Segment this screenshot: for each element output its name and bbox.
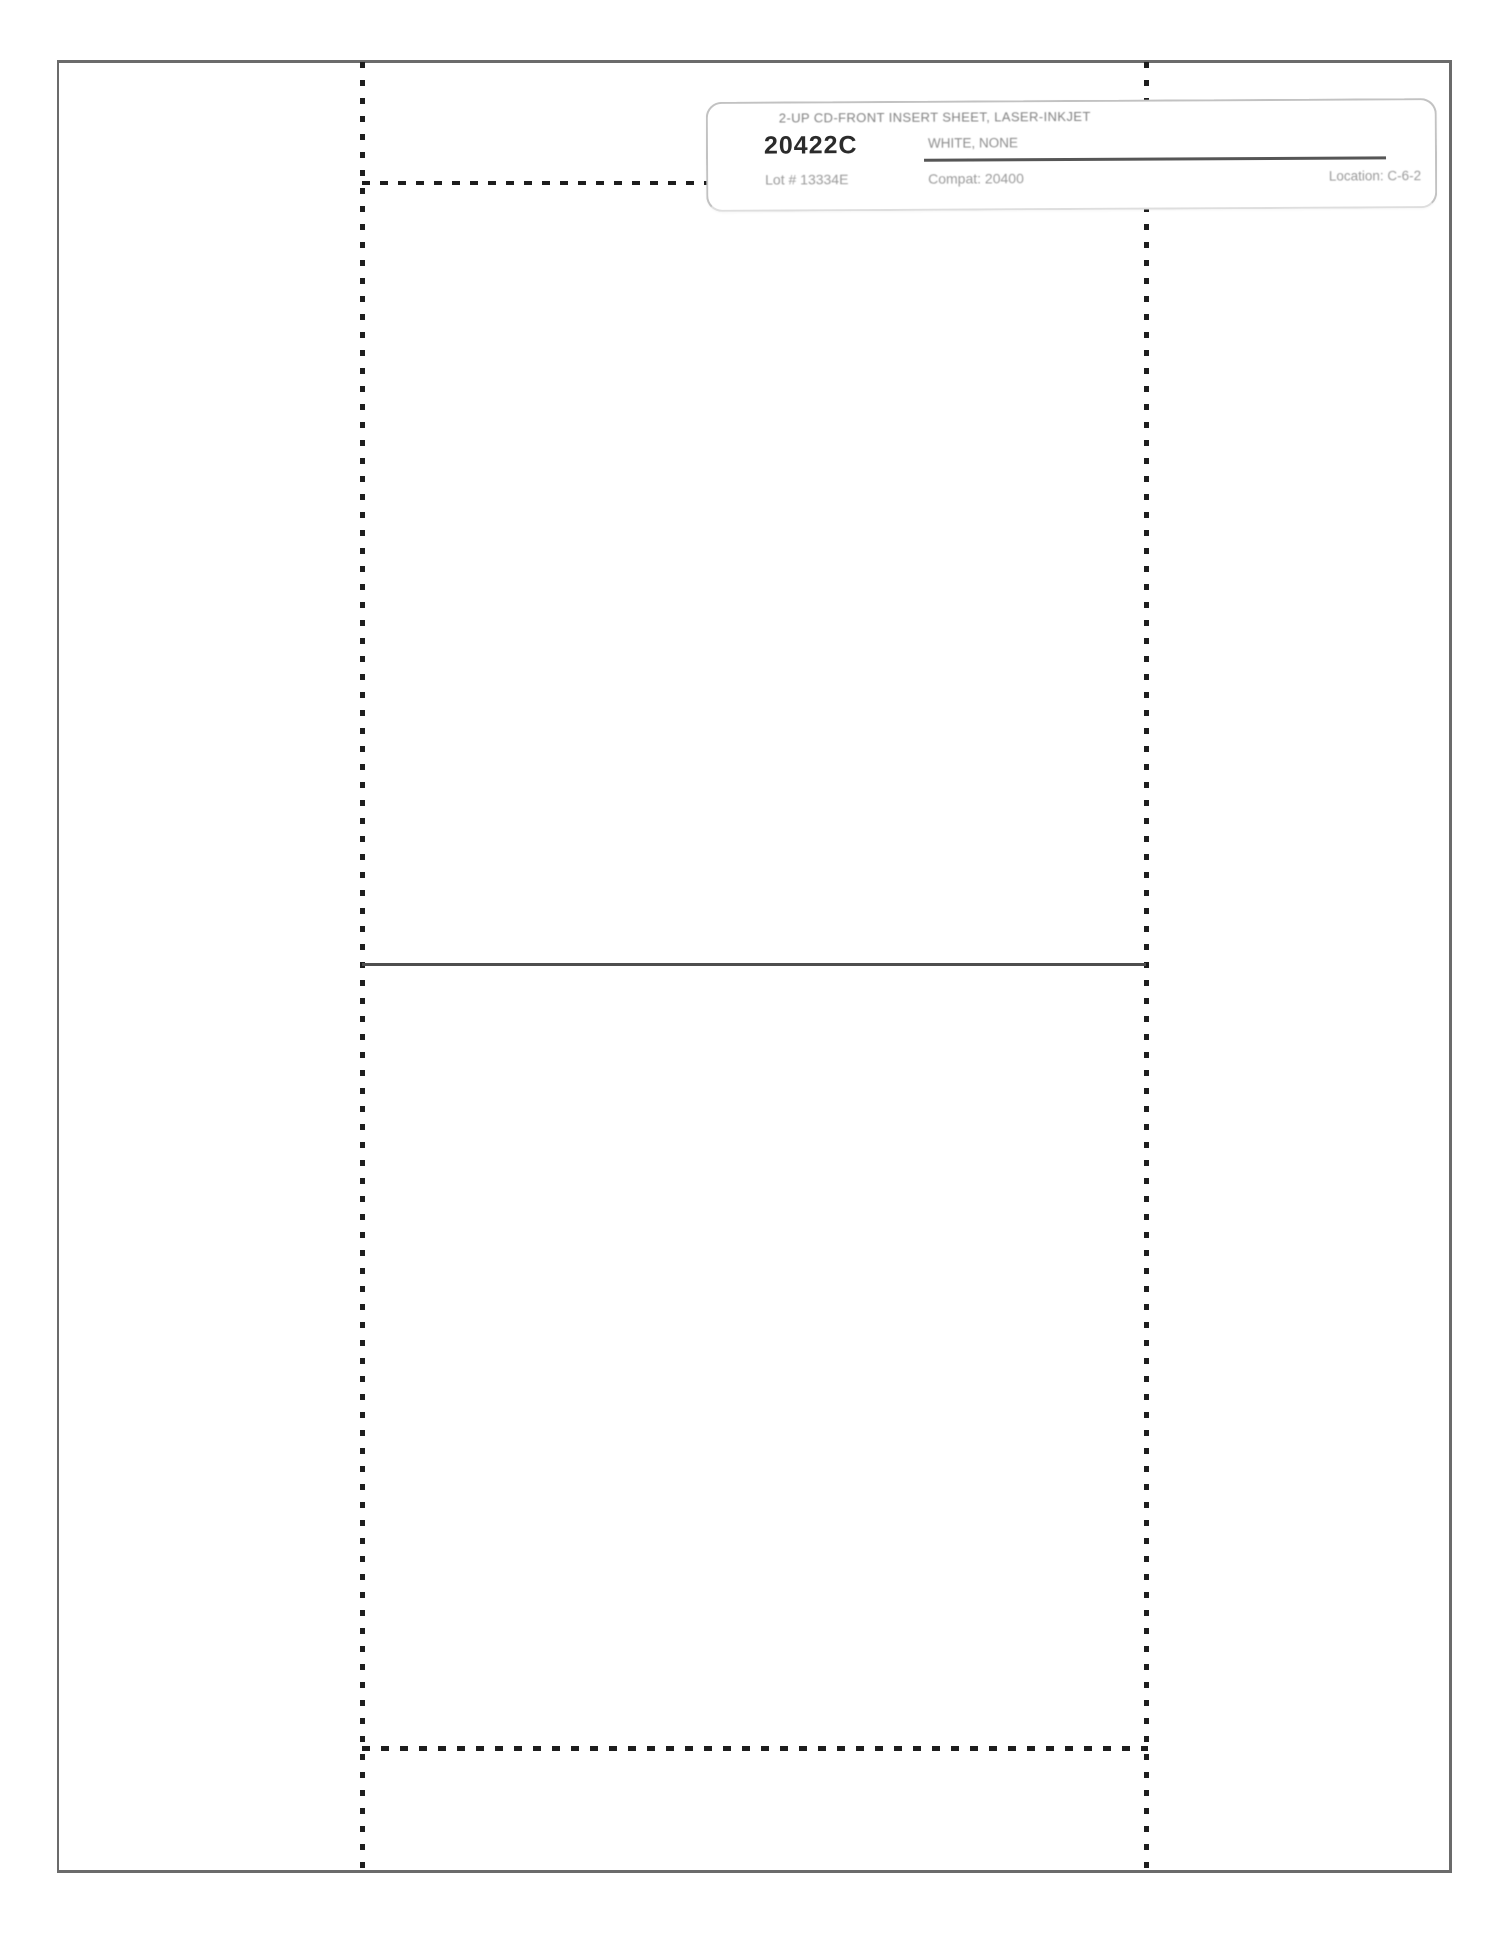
compat-number: Compat: 20400 (928, 170, 1024, 187)
part-number: 20422C (764, 131, 858, 160)
left-perforation-line (360, 62, 365, 1872)
label-divider-rule (924, 156, 1386, 161)
lot-number: Lot # 13334E (765, 171, 848, 187)
bottom-perforation-line (362, 1746, 1148, 1751)
product-title: 2-UP CD-FRONT INSERT SHEET, LASER-INKJET (779, 109, 1091, 126)
stock-description: WHITE, NONE (928, 135, 1018, 150)
top-perforation-line (362, 181, 710, 185)
middle-fold-line (362, 963, 1146, 966)
product-spec-label: 2-UP CD-FRONT INSERT SHEET, LASER-INKJET… (706, 98, 1438, 212)
scanned-template-sheet: 2-UP CD-FRONT INSERT SHEET, LASER-INKJET… (0, 0, 1511, 1933)
warehouse-location: Location: C-6-2 (1329, 168, 1421, 183)
sheet-outer-border (57, 60, 1452, 1873)
right-perforation-line (1144, 62, 1149, 1872)
